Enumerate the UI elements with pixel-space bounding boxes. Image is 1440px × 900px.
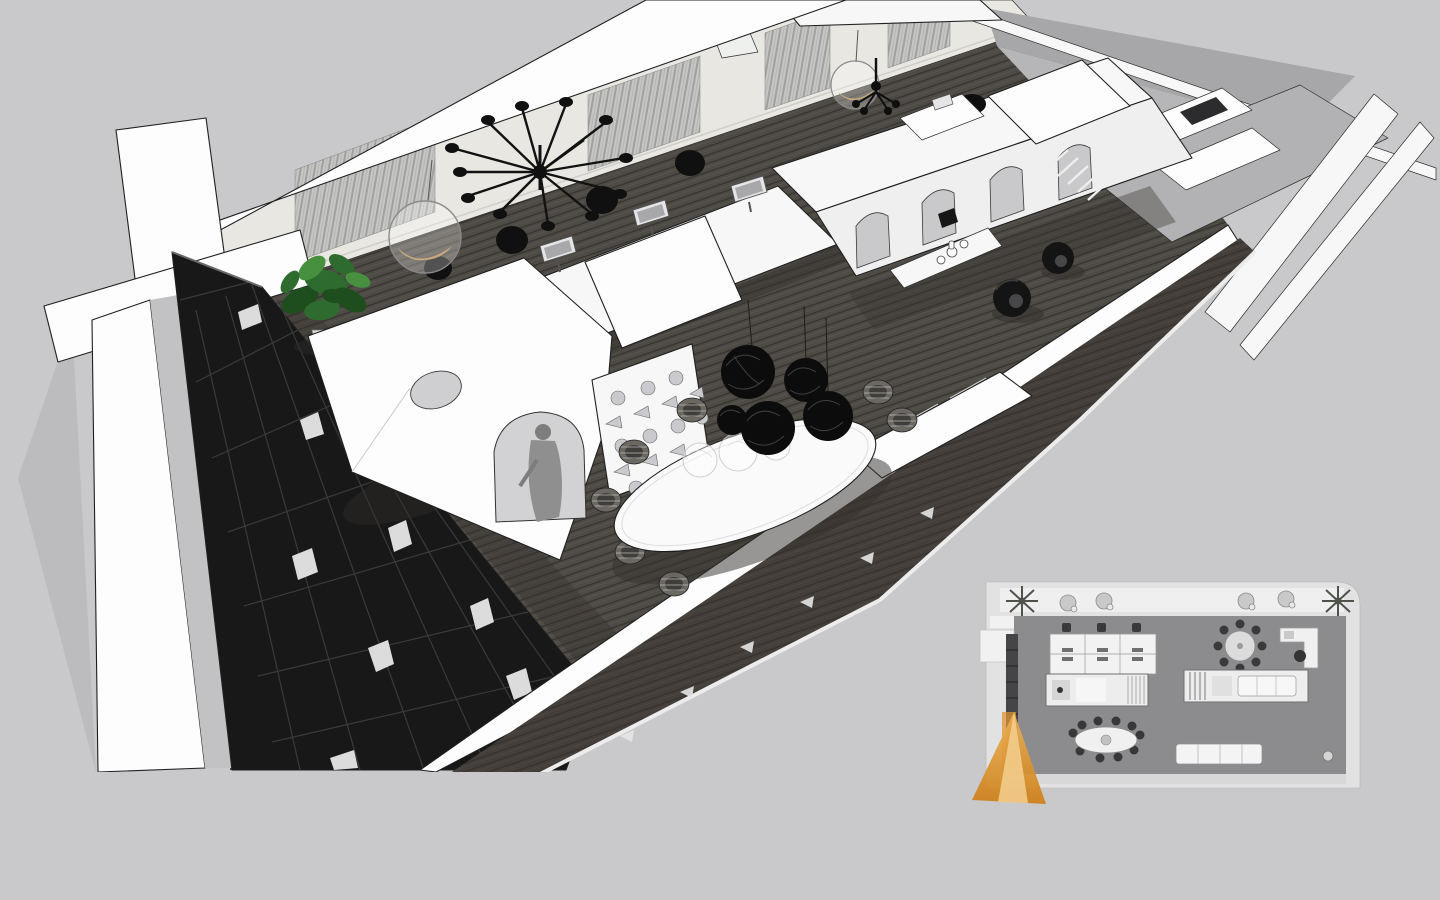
wire-chair (863, 380, 893, 404)
task-chair (675, 150, 705, 176)
plan-lounge-room (1184, 670, 1308, 702)
person-body (529, 440, 562, 522)
wire-chair (887, 408, 917, 432)
task-chair (496, 226, 528, 254)
wire-chair (619, 440, 649, 464)
plan-wall-sofa (1176, 744, 1262, 764)
plan-storage-room (1046, 674, 1148, 706)
wire-chair (591, 488, 621, 512)
bottom-mask (0, 772, 1440, 900)
pendant-sphere (803, 391, 853, 441)
plan-armchair (1294, 650, 1306, 662)
plan-planter-ball (1323, 751, 1333, 761)
render-viewport: { "meta": { "view_label": "3D cutaway re… (0, 0, 1440, 900)
pendant-sphere (717, 405, 747, 435)
pendant-sphere (741, 401, 795, 455)
floor-plan-inset (972, 582, 1360, 804)
plan-room-sofa (1238, 676, 1296, 696)
plan-round-table (1214, 620, 1267, 673)
person-head (535, 424, 551, 440)
wire-chair (677, 398, 707, 422)
plan-palm-planter (1322, 586, 1354, 616)
office-3d-rendering (0, 0, 1440, 900)
plan-door-gap (990, 616, 1014, 628)
plan-palm-planter (1006, 586, 1038, 616)
pendant-sphere (721, 345, 775, 399)
wire-chair (659, 572, 689, 596)
plan-bottom-wall (1014, 774, 1346, 784)
